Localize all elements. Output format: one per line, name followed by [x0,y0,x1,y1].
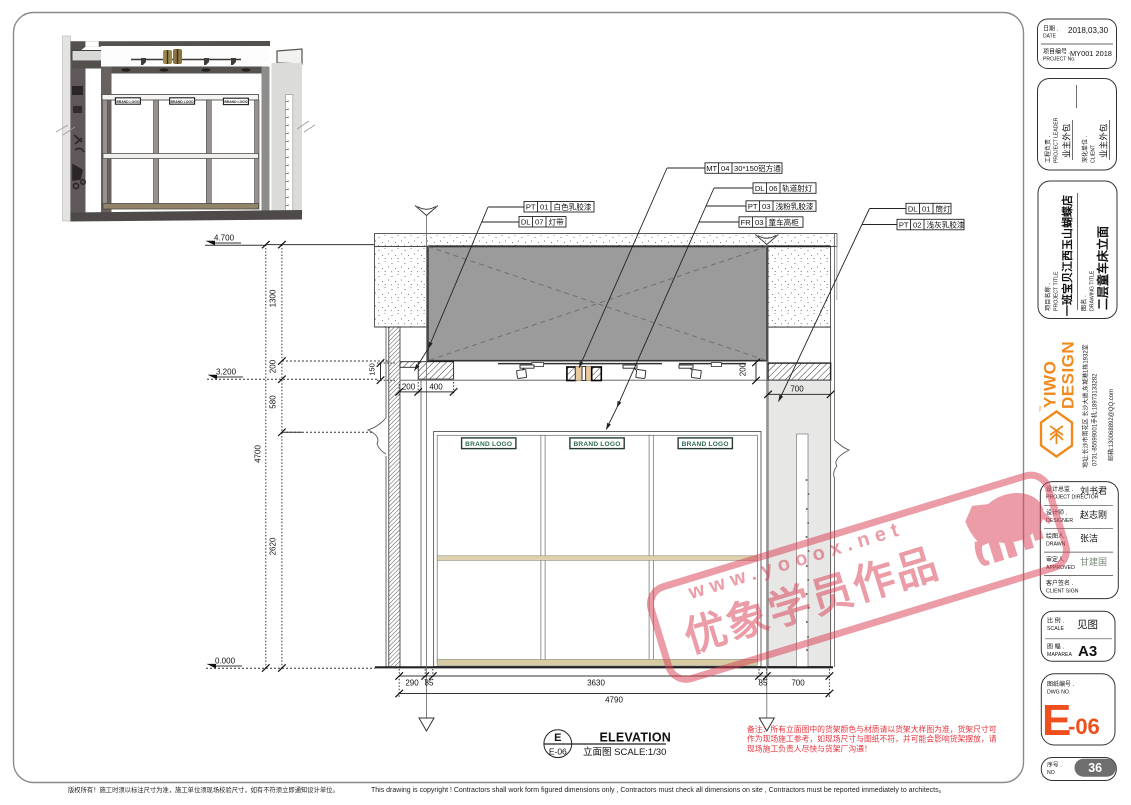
svg-text:作为现场施工参考，如现场尺寸与图纸不符，并可能会影响货架摆放: 作为现场施工参考，如现场尺寸与图纸不符，并可能会影响货架摆放，请 [747,734,997,744]
svg-text:PROJECT TITLE: PROJECT TITLE [1054,271,1060,311]
svg-text:深化单位 .: 深化单位 . [1081,135,1089,163]
svg-text:NO: NO [1047,770,1055,776]
svg-text:备注：所有立面图中的货架颜色与材质请以货架大样图为准，货架尺: 备注：所有立面图中的货架颜色与材质请以货架大样图为准，货架尺寸可 [747,724,997,734]
svg-text:业主外包: 业主外包 [1098,123,1109,158]
svg-text:07: 07 [535,218,543,227]
svg-text:CLIENT: CLIENT [1091,145,1097,163]
svg-text:2018,03,30: 2018,03,30 [1068,26,1109,35]
svg-text:4700: 4700 [254,445,263,463]
svg-text:BRAND LOGO: BRAND LOGO [573,441,620,448]
svg-text:刘书君: 刘书君 [1080,485,1107,496]
svg-text:BRAND LOGO: BRAND LOGO [465,441,512,448]
svg-text:甘建国: 甘建国 [1080,556,1107,567]
svg-text:02: 02 [913,221,921,230]
svg-text:4790: 4790 [605,696,623,705]
svg-text:1300: 1300 [269,289,278,307]
svg-text:PT: PT [748,202,758,211]
svg-text:图 幅 .: 图 幅 . [1047,643,1064,651]
svg-text:浅灰乳胶漆: 浅灰乳胶漆 [927,220,965,230]
svg-text:2620: 2620 [269,537,278,555]
svg-text:PT: PT [899,221,909,230]
svg-text:03: 03 [762,202,770,211]
svg-text:FR: FR [741,218,752,227]
svg-text:700: 700 [791,679,805,688]
svg-text:CLIENT SIGN: CLIENT SIGN [1046,589,1079,595]
svg-text:YIWO: YIWO [1041,361,1060,408]
svg-text:BRAND LOGO: BRAND LOGO [682,441,729,448]
svg-text:邮箱:130068892@QQ.com: 邮箱:130068892@QQ.com [1107,389,1115,461]
svg-text:项目编号 .: 项目编号 . [1043,48,1071,56]
svg-text:30*150铝方通: 30*150铝方通 [734,163,781,173]
svg-text:3.200: 3.200 [216,368,237,377]
svg-text:A3: A3 [1078,643,1097,660]
svg-text:灯带: 灯带 [549,217,565,227]
svg-text:4.700: 4.700 [214,234,235,243]
svg-text:客户签名 .: 客户签名 . [1046,579,1074,587]
svg-text:E-06: E-06 [549,747,567,757]
svg-text:E: E [1042,696,1071,745]
svg-text:MAPAREA: MAPAREA [1047,652,1073,658]
svg-text:见图: 见图 [1077,619,1098,631]
svg-text:业主外包: 业主外包 [1061,123,1072,158]
svg-text:TM: TM [1038,406,1043,412]
svg-text:BRAND LOGO: BRAND LOGO [224,100,248,104]
svg-text:85: 85 [425,679,434,688]
svg-text:白色乳胶漆: 白色乳胶漆 [554,202,592,212]
svg-text:580: 580 [269,395,278,409]
svg-text:01: 01 [540,203,548,212]
svg-text:0.000: 0.000 [215,657,236,666]
svg-text:290: 290 [405,679,419,688]
svg-text:筒灯: 筒灯 [936,204,952,214]
svg-text:200: 200 [269,359,278,373]
svg-text:一班宝贝江西玉山蝴蝶店: 一班宝贝江西玉山蝴蝶店 [1060,195,1074,316]
svg-text:DL: DL [908,205,918,214]
svg-text:0731-85599001手机:18973133282: 0731-85599001手机:18973133282 [1091,373,1099,466]
svg-text:PROJECT LEADER: PROJECT LEADER [1054,117,1060,163]
svg-text:01: 01 [922,205,930,214]
svg-text:700: 700 [790,385,804,394]
svg-text:200: 200 [739,362,748,376]
svg-text:地址:长沙市雨花区 长沙大道,东城港1栋1932室: 地址:长沙市雨花区 长沙大道,东城港1栋1932室 [1082,344,1090,468]
svg-text:童车高柜: 童车高柜 [769,217,800,227]
svg-text:200: 200 [402,382,416,391]
svg-text:张洁: 张洁 [1080,533,1098,544]
svg-text:立面图 SCALE:1/30: 立面图 SCALE:1/30 [583,746,666,758]
svg-text:DWG NO.: DWG NO. [1047,690,1070,696]
svg-text:400: 400 [429,382,443,391]
svg-text:3630: 3630 [587,679,605,688]
svg-text:MY001 2018: MY001 2018 [1070,49,1112,58]
svg-text:03: 03 [755,218,763,227]
svg-text:工程负责 .: 工程负责 . [1044,135,1052,163]
svg-text:图名 .: 图名 . [1080,295,1088,311]
svg-text:比 例 .: 比 例 . [1047,617,1064,625]
svg-text:DL: DL [755,184,765,193]
svg-text:150: 150 [368,363,377,376]
svg-text:DESIGN: DESIGN [1059,341,1078,409]
svg-text:浅粉乳胶漆: 浅粉乳胶漆 [776,201,814,211]
svg-text:版权所有！施工时须以标注尺寸为准，施工单位须现场校验尺寸，如: 版权所有！施工时须以标注尺寸为准，施工单位须现场校验尺寸，如有不符须立即通知设计… [68,785,339,794]
svg-text:36: 36 [1088,761,1102,775]
svg-text:MT: MT [706,164,717,173]
svg-text:DL: DL [521,218,531,227]
svg-text:PT: PT [526,203,536,212]
svg-text:SCALE: SCALE [1047,626,1065,632]
svg-text:DATE: DATE [1043,34,1057,40]
svg-text:This drawing is copyright ! Co: This drawing is copyright ! Contractors … [371,787,946,794]
svg-text:轨道射灯: 轨道射灯 [782,183,813,193]
svg-text:04: 04 [721,164,729,173]
svg-text:DRAWING TITLE: DRAWING TITLE [1090,270,1096,311]
svg-text:赵志刚: 赵志刚 [1080,509,1107,520]
svg-text:ELEVATION: ELEVATION [600,730,671,744]
svg-text:06: 06 [769,184,777,193]
svg-text:日期 .: 日期 . [1043,25,1059,33]
svg-text:E: E [554,732,561,744]
svg-text:BRAND LOGO: BRAND LOGO [116,100,140,104]
svg-text:项目名称 .: 项目名称 . [1044,283,1052,311]
svg-text:85: 85 [759,679,768,688]
svg-text:BRAND LOGO: BRAND LOGO [171,100,195,104]
svg-text:二层童车床立面: 二层童车床立面 [1095,226,1110,310]
svg-text:-06: -06 [1068,714,1100,739]
svg-text:现场施工负责人尽快与货架厂沟通！: 现场施工负责人尽快与货架厂沟通！ [747,743,872,753]
svg-text:序号 .: 序号 . [1047,761,1062,769]
svg-text:图纸编号 .: 图纸编号 . [1047,680,1075,688]
